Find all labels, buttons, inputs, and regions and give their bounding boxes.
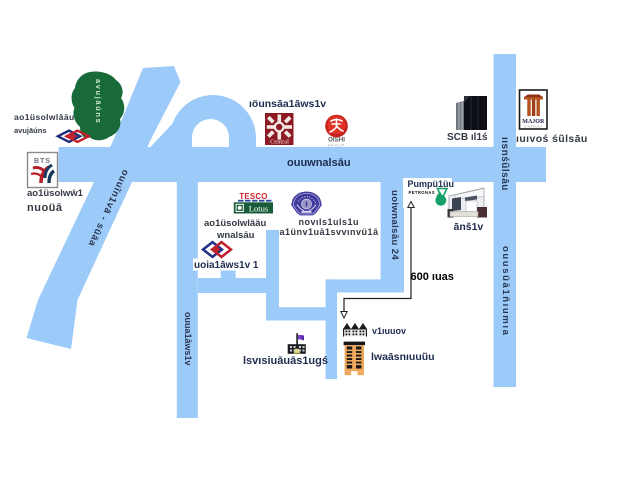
svg-text:OISHI: OISHI: [328, 137, 345, 144]
svg-text:BTS: BTS: [34, 158, 51, 165]
svg-text:CINEPLEX: CINEPLEX: [524, 125, 543, 129]
svg-text:GROUP: GROUP: [328, 144, 345, 148]
svg-text:Lotus: Lotus: [249, 204, 269, 214]
svg-text:TESCO: TESCO: [239, 192, 267, 201]
svg-text:Central: Central: [270, 139, 289, 146]
